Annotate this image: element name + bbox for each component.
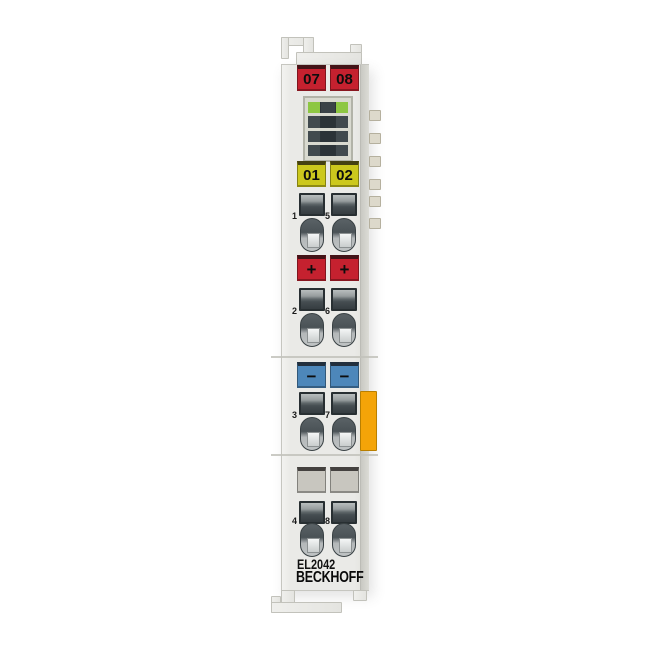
spring-release-clamp <box>299 193 325 216</box>
contact-window <box>339 538 352 553</box>
wire-contact-hole <box>332 523 356 557</box>
led-indicator-block <box>303 96 353 162</box>
spring-release-clamp <box>299 288 325 311</box>
wire-contact-hole <box>332 218 356 252</box>
wire-contact-hole <box>332 417 356 451</box>
ebus-contact-tab <box>369 133 381 144</box>
contact-window <box>307 328 320 343</box>
terminal-number: 6 <box>325 306 335 316</box>
led-slot <box>321 116 335 127</box>
led-off <box>308 131 320 142</box>
terminal-number: 4 <box>292 516 302 526</box>
terminal-number: 8 <box>325 516 335 526</box>
din-hook-prong <box>281 37 289 59</box>
led-off <box>308 145 320 156</box>
led-row <box>308 131 348 142</box>
polarity-label-minus: − <box>297 362 326 388</box>
module-side-wall <box>360 65 369 590</box>
led-green <box>336 102 348 113</box>
housing-seam <box>271 454 378 456</box>
housing-seam <box>271 356 378 358</box>
contact-window <box>307 233 320 248</box>
led-row <box>308 102 348 113</box>
led-off <box>308 116 320 127</box>
led-off <box>336 131 348 142</box>
channel-label-08: 08 <box>330 65 359 91</box>
led-slot <box>321 131 335 142</box>
foot-right-leg <box>353 590 367 601</box>
contact-window <box>339 233 352 248</box>
release-latch-orange <box>360 391 377 451</box>
terminal-number: 2 <box>292 306 302 316</box>
led-slot <box>321 102 335 113</box>
polarity-label-plus: + <box>330 255 359 281</box>
led-slot <box>321 145 335 156</box>
wire-contact-hole <box>300 523 324 557</box>
terminal-number: 1 <box>292 211 302 221</box>
terminal-number: 3 <box>292 410 302 420</box>
channel-label-07: 07 <box>297 65 326 91</box>
blank-label <box>330 467 359 493</box>
spring-release-clamp <box>299 392 325 415</box>
top-right-tab <box>350 44 362 53</box>
led-off <box>336 116 348 127</box>
signal-label-01: 01 <box>297 161 326 187</box>
spring-release-clamp <box>299 501 325 524</box>
wire-contact-hole <box>300 417 324 451</box>
led-row <box>308 116 348 127</box>
foot-bar <box>271 602 342 613</box>
wire-contact-hole <box>300 313 324 347</box>
contact-window <box>339 432 352 447</box>
blank-label <box>297 467 326 493</box>
polarity-label-minus: − <box>330 362 359 388</box>
contact-window <box>307 538 320 553</box>
polarity-label-plus: + <box>297 255 326 281</box>
wire-contact-hole <box>332 313 356 347</box>
product-photo-canvas: 07 08 <box>0 0 650 650</box>
led-off <box>336 145 348 156</box>
ebus-contact-tab <box>369 179 381 190</box>
contact-window <box>307 432 320 447</box>
ebus-contact-tab <box>369 196 381 207</box>
led-row <box>308 145 348 156</box>
terminal-number: 5 <box>325 211 335 221</box>
wire-contact-hole <box>300 218 324 252</box>
terminal-number: 7 <box>325 410 335 420</box>
brand-logo-text: BECKHOFF <box>296 569 363 587</box>
contact-window <box>339 328 352 343</box>
ebus-contact-tab <box>369 156 381 167</box>
led-green <box>308 102 320 113</box>
signal-label-02: 02 <box>330 161 359 187</box>
ebus-contact-tab <box>369 218 381 229</box>
ebus-contact-tab <box>369 110 381 121</box>
